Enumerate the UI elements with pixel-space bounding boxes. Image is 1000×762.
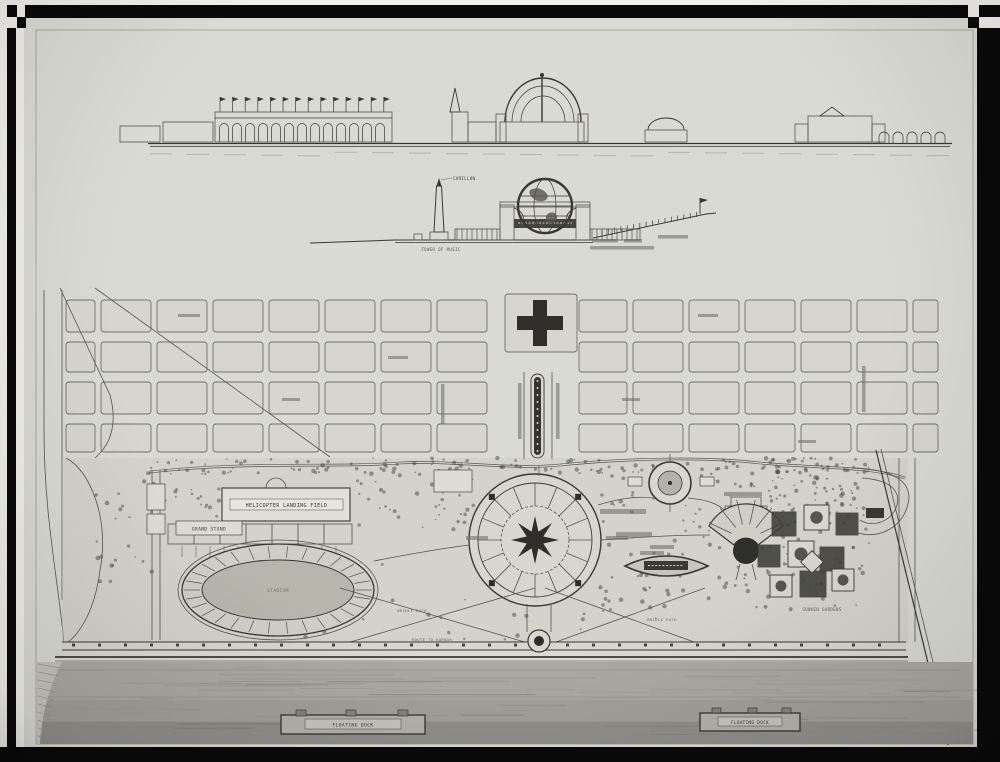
tower-caption: TOWER OF MUSIC [421, 247, 461, 252]
sunken-gardens-label: SUNKEN GARDENS [802, 607, 842, 612]
carillon-label: CARILLON [453, 176, 476, 181]
floating-dock-right: FLOATING DOCK [700, 708, 800, 731]
grand-stand-label: GRAND STAND [192, 527, 226, 533]
amphitheater-stage [733, 538, 759, 564]
route-to-harbor-label: ROUTE TO HARBOR [412, 637, 453, 642]
stadium-label: STADIUM [267, 588, 289, 594]
parterre-garden [758, 505, 858, 597]
photograph-of-master-plan: CARILLON TOWER OF MUSIC [0, 0, 1000, 762]
bridle-path-west-label: BRIDLE PATH [397, 608, 427, 613]
helicopter-field-label: HELICOPTER LANDING FIELD [246, 503, 328, 509]
central-circular-court [469, 474, 601, 606]
central-square-park [505, 294, 577, 352]
plan-drawing: CARILLON TOWER OF MUSIC [0, 0, 1000, 762]
floating-dock-left: FLOATING DOCK [281, 710, 425, 734]
bridle-path-east-label: BRIDLE PATH [647, 617, 677, 622]
harbor-water [37, 662, 1000, 744]
floating-dock-left-label: FLOATING DOCK [332, 723, 373, 729]
lagoon-ring [649, 462, 691, 504]
floating-dock-right-label: FLOATING DOCK [731, 720, 769, 725]
